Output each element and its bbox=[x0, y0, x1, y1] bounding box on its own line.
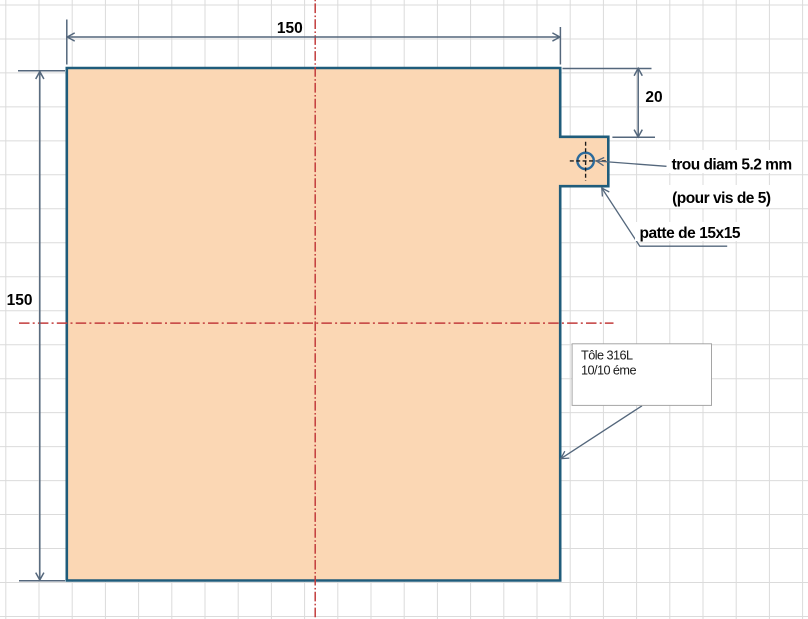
svg-text:20: 20 bbox=[645, 89, 662, 106]
svg-text:(pour vis de 5): (pour vis de 5) bbox=[672, 190, 771, 207]
svg-text:Tôle 316L: Tôle 316L bbox=[581, 349, 633, 363]
svg-text:150: 150 bbox=[277, 20, 303, 37]
svg-text:150: 150 bbox=[7, 292, 33, 309]
svg-text:trou diam 5.2 mm: trou diam 5.2 mm bbox=[672, 156, 793, 173]
svg-text:10/10 éme: 10/10 éme bbox=[581, 364, 637, 378]
svg-text:patte de 15x15: patte de 15x15 bbox=[640, 225, 741, 242]
